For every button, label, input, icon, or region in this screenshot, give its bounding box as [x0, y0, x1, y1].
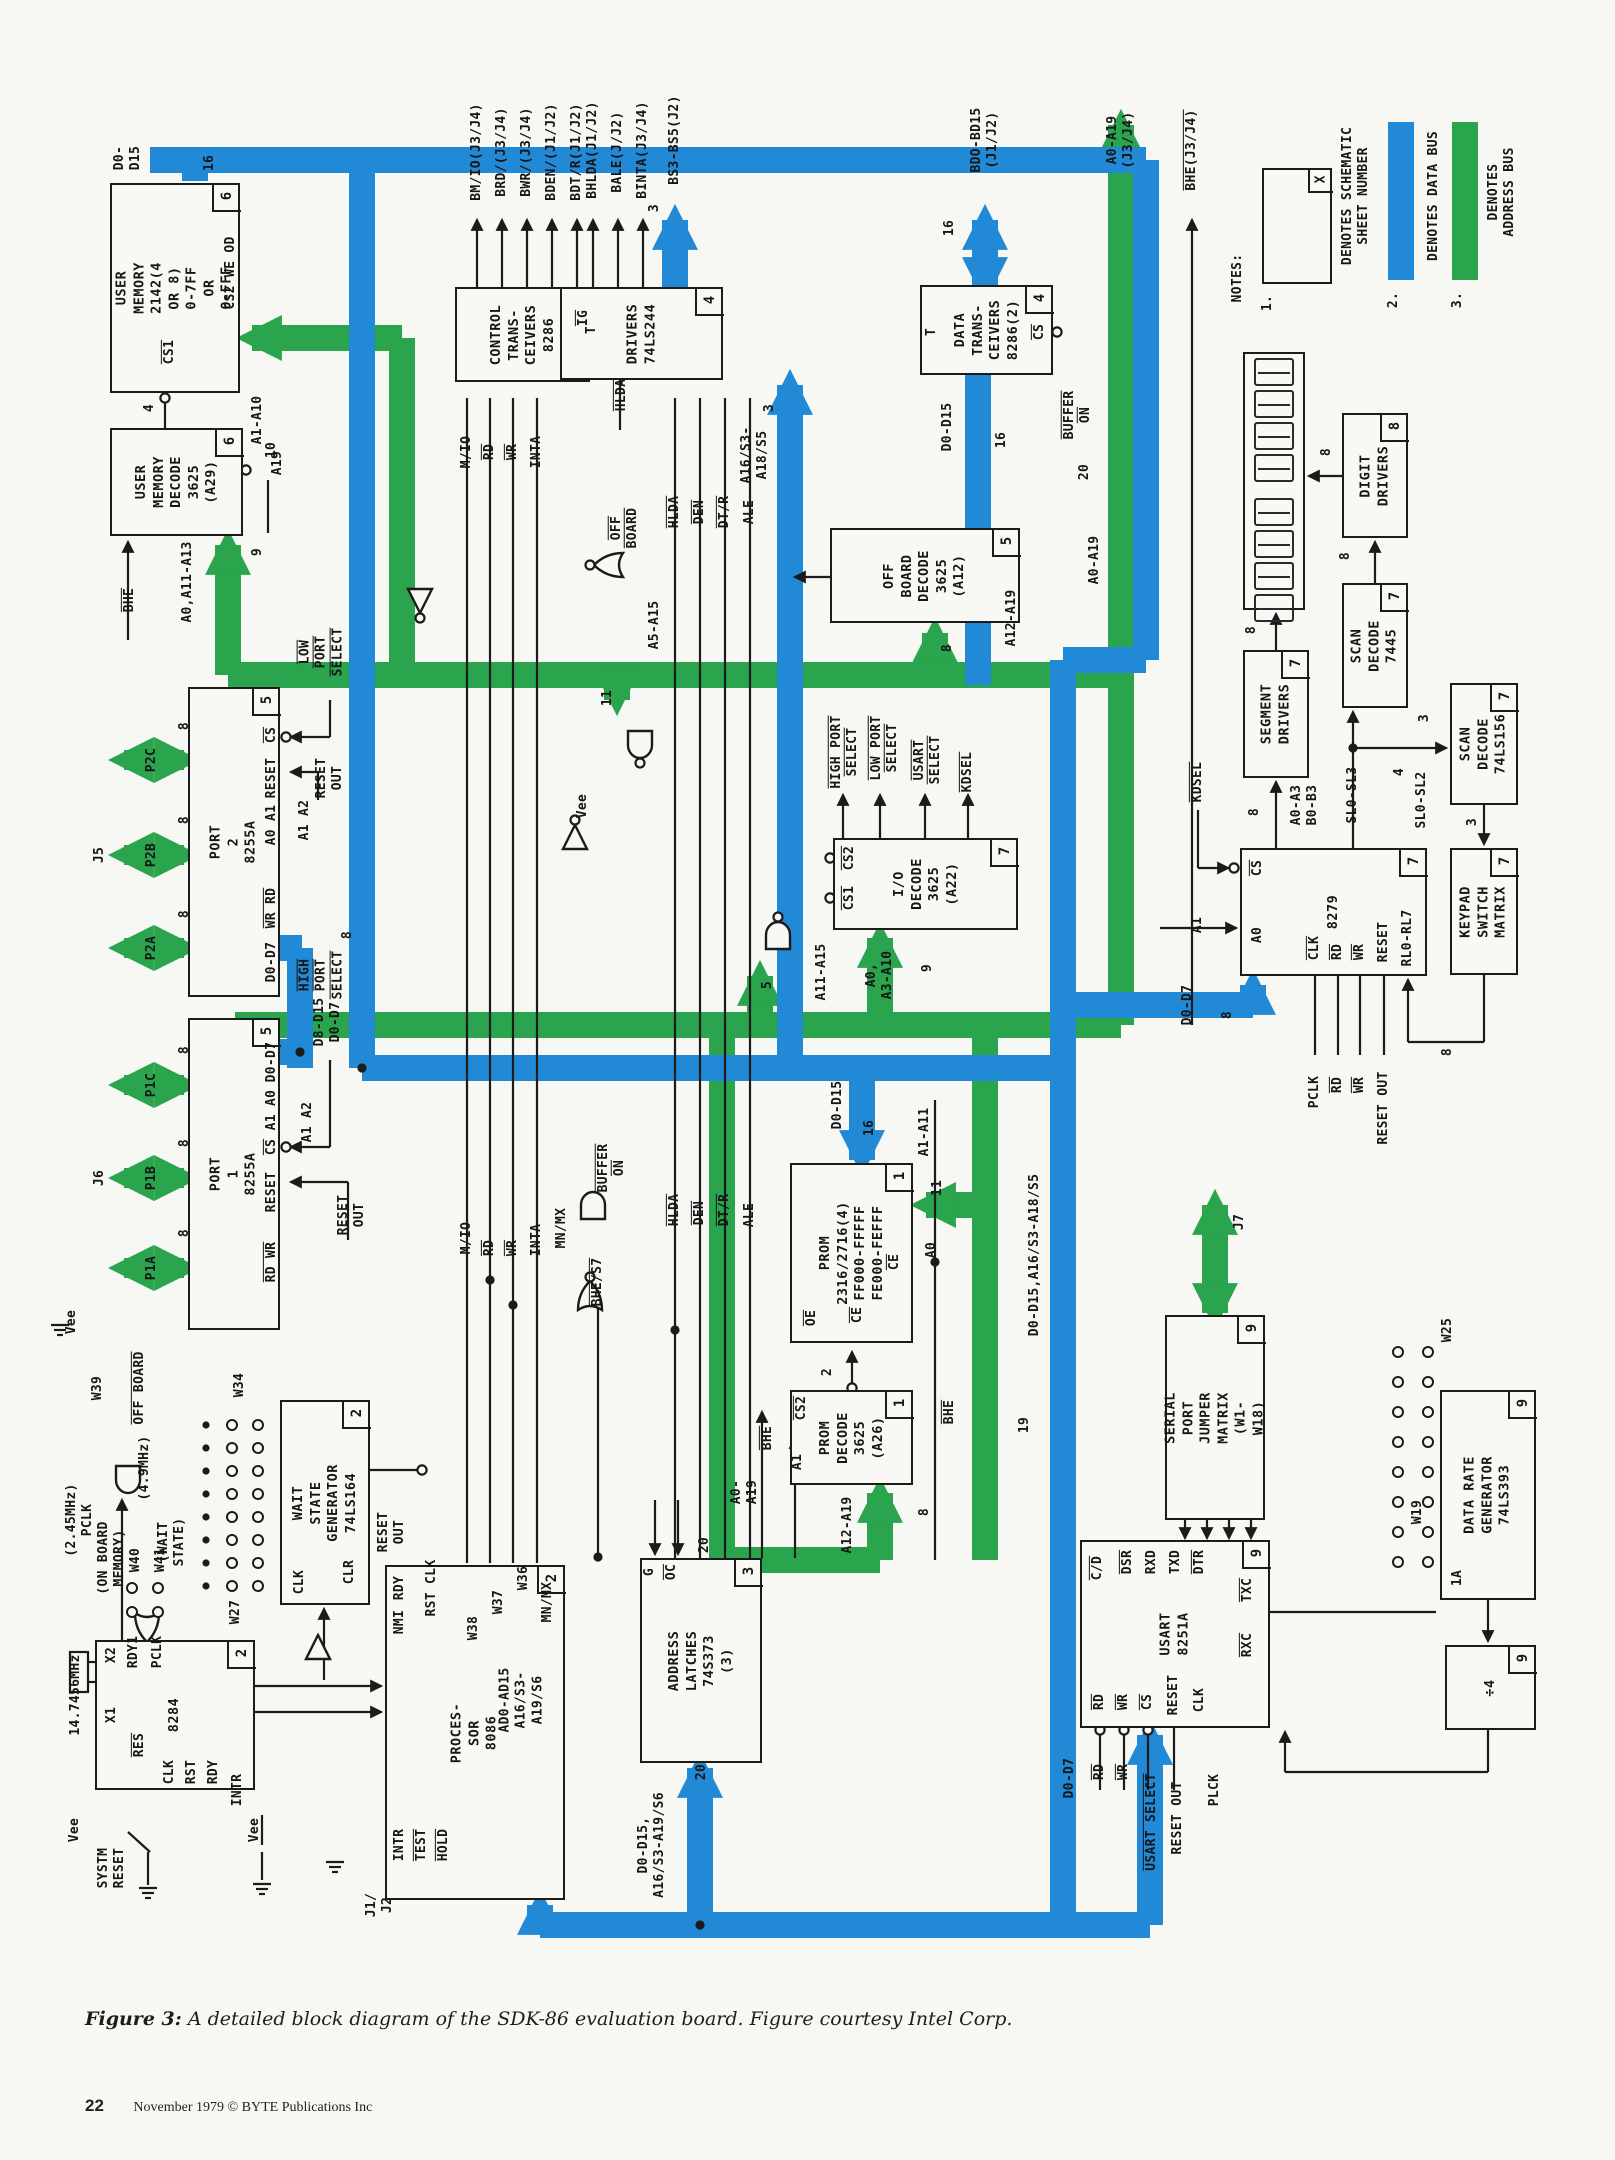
junction-dot: [508, 1300, 517, 1309]
signal-label: PCLK: [1307, 1076, 1323, 1109]
block-label: ÷4: [1482, 1679, 1500, 1696]
jumper-pad: [253, 1558, 263, 1568]
signal-label: 4: [142, 404, 158, 412]
signal-label: 11: [600, 690, 616, 706]
signal-label: (ON BOARD MEMORY): [96, 1521, 129, 1594]
signal-label: D0-D7: [264, 942, 280, 983]
jumper-pad: [227, 1535, 237, 1545]
signal-label: BWR/(J3/J4): [519, 107, 535, 196]
block-label: OFF BOARD DECODE 3625 (A12): [881, 550, 969, 602]
jumper-pad: [127, 1583, 137, 1593]
signal-label: BM/IO(J3/J4): [469, 103, 485, 201]
signal-label: HLDA: [614, 379, 630, 412]
signal-label: PLCK: [1207, 1774, 1223, 1807]
jumper-pad: [127, 1607, 137, 1617]
signal-label: J1/ J2: [364, 1893, 397, 1917]
schematic-sheet-number: 3: [734, 1558, 763, 1587]
schematic-sheet-number: 9: [1237, 1315, 1266, 1344]
signal-label: A1: [1190, 917, 1206, 933]
signal-label: (2.45MHz) PCLK: [64, 1483, 97, 1556]
signal-label: RD WR: [264, 1242, 280, 1283]
block-label: USART 8251A: [1157, 1612, 1192, 1655]
page-number: 22: [85, 2096, 104, 2115]
figure-caption-label: Figure 3:: [85, 2008, 182, 2030]
block-address-latches: ADDRESS LATCHES 74S373 (3)3: [640, 1558, 762, 1763]
signal-label: AD0-AD15 A16/S3- A19/S6: [498, 1667, 547, 1732]
signal-label: 3: [1417, 714, 1433, 722]
signal-label: BINTA(J3/J4): [635, 101, 651, 199]
signal-label: HOLD: [436, 1829, 452, 1862]
signal-label: TEST: [414, 1829, 430, 1862]
signal-label: HIGH PORT SELECT: [829, 715, 862, 788]
jumper-post: [202, 1490, 209, 1497]
signal-label: BUFFER ON: [1062, 391, 1095, 440]
block-off-board-decode: OFF BOARD DECODE 3625 (A12)5: [830, 528, 1020, 623]
signal-label: LOW PORT SELECT: [869, 715, 902, 780]
signal-label: A1 A2: [300, 1102, 316, 1143]
signal-label: A16/S3- A18/S5: [739, 427, 772, 484]
signal-label: A1 A0: [264, 1090, 280, 1131]
block-data-rate-generator: DATA RATE GENERATOR 74LS3939: [1440, 1390, 1536, 1600]
inverting-pin-bubble: [1052, 327, 1061, 336]
signal-label: OFF BOARD: [132, 1351, 148, 1424]
junction-dot: [593, 1552, 602, 1561]
signal-label: CE: [850, 1307, 866, 1323]
block-label: PROCES- SOR 8086: [449, 1702, 502, 1762]
signal-label: OE: [804, 1310, 820, 1326]
inverting-pin-bubble: [160, 393, 169, 402]
block-divide-by-4: ÷49: [1445, 1645, 1536, 1730]
signal-label: RD: [1092, 1764, 1108, 1780]
jumper-pad: [1423, 1527, 1433, 1537]
block-label: CONTROL TRANS- CEIVERS 8286: [487, 304, 557, 364]
signal-label: A0-A19 (J3/J4): [1105, 112, 1138, 169]
signal-label: CS1: [842, 886, 858, 910]
nand-gate: [628, 731, 652, 768]
jumper-post: [202, 1536, 209, 1543]
signal-label: 16: [942, 220, 958, 236]
block-serial-port-jumper-matrix: SERIAL PORT JUMPER MATRIX (W1-W18)9: [1165, 1315, 1265, 1520]
signal-label: DEN: [692, 500, 708, 524]
and-gate: [581, 1192, 605, 1219]
jumper-pad: [1393, 1407, 1403, 1417]
signal-label: 9: [250, 548, 266, 556]
block-label: PORT 2 8255A: [208, 820, 261, 864]
schematic-sheet-number: 5: [992, 528, 1021, 557]
signal-label: P2B: [144, 843, 160, 867]
signal-label: CLK: [1192, 1688, 1208, 1712]
jumper-post: [202, 1513, 209, 1520]
signal-label: OFF BOARD: [609, 508, 642, 549]
seven-segment-digit: [1254, 358, 1294, 386]
signal-label: RXD: [1144, 1550, 1160, 1574]
signal-label: USART SELECT: [1144, 1773, 1160, 1871]
signal-label: D0- D15: [112, 146, 145, 170]
note-1-text: DENOTES SCHEMATIC SHEET NUMBER: [1340, 127, 1373, 265]
signal-label: CE: [887, 1254, 903, 1270]
signal-label: RESET: [1166, 1675, 1182, 1716]
signal-label: A1-A10: [250, 396, 266, 445]
signal-label: W38: [466, 1616, 482, 1640]
signal-label: 3: [1465, 818, 1481, 826]
sheet-number-sample-corner: X: [1308, 168, 1333, 193]
block-label: DATA TRANS- CEIVERS 8286(2): [951, 300, 1021, 360]
jumper-pad: [227, 1466, 237, 1476]
signal-label: D0-D15, A16/S3-A19/S6: [636, 1792, 669, 1898]
seven-segment-digit: [1254, 562, 1294, 590]
signal-label: CLR: [342, 1560, 358, 1584]
jumper-pad: [153, 1583, 163, 1593]
signal-label: BHE: [942, 1400, 958, 1424]
signal-label: 20: [1077, 464, 1093, 480]
signal-label: RESET OUT: [336, 1195, 369, 1236]
signal-label: 16: [202, 155, 218, 171]
signal-label: KDSEL: [1190, 762, 1206, 803]
signal-label: X2: [104, 1647, 120, 1663]
jumper-pad: [1393, 1347, 1403, 1357]
signal-label: 8: [177, 1139, 193, 1147]
signal-label: C/D: [1090, 1556, 1106, 1580]
block-digit-drivers: DIGIT DRIVERS8: [1342, 413, 1408, 538]
signal-label: W25: [1440, 1318, 1456, 1342]
signal-label: W37: [491, 1590, 507, 1614]
signal-label: CS: [264, 1139, 280, 1155]
signal-label: D0-D7: [1062, 1758, 1078, 1799]
block-seven-segment-display: [1243, 352, 1305, 610]
jumper-pad: [227, 1489, 237, 1499]
signal-label: A19: [270, 451, 286, 475]
signal-label: 8: [940, 644, 956, 652]
block-label: PROM 2316/2716(4) FF000-FFFFF FE000-FEFF…: [816, 1201, 886, 1305]
jumper-pad: [1423, 1557, 1433, 1567]
signal-label: RDY1: [126, 1636, 142, 1669]
jumper-pad: [227, 1581, 237, 1591]
signal-label: W40: [128, 1548, 144, 1572]
signal-label: 16: [994, 432, 1010, 448]
wire: [128, 1832, 150, 1852]
signal-label: IG: [576, 310, 592, 326]
signal-label: A0: [1250, 927, 1266, 943]
block-user-memory-decode: USER MEMORY DECODE 3625 (A29)6: [110, 428, 243, 536]
signal-label: CS: [1032, 324, 1048, 340]
signal-label: RESET: [264, 758, 280, 799]
jumper-pad: [1393, 1467, 1403, 1477]
signal-label: WR: [1116, 1694, 1132, 1710]
block-label: PROM DECODE 3625 (A26): [816, 1412, 886, 1464]
signal-label: 20: [697, 1537, 713, 1553]
signal-label: P2A: [144, 936, 160, 960]
seven-segment-digit: [1254, 422, 1294, 450]
block-label: USER MEMORY 2142(4 OR 8) 0-7FF OR 0-FFF: [114, 257, 237, 320]
signal-label: RST CLK: [424, 1560, 440, 1617]
schematic-sheet-number: 7: [1490, 848, 1519, 877]
signal-label: A11-A15: [814, 944, 830, 1001]
block-label: SCAN DECODE 7445: [1349, 620, 1402, 672]
signal-label: BRD/(J3/J4): [494, 107, 510, 196]
signal-label: ALE: [742, 1203, 758, 1227]
signal-label: NMI: [392, 1610, 408, 1634]
signal-label: 8: [177, 816, 193, 824]
signal-label: J6: [92, 1170, 108, 1186]
block-label: WAIT STATE GENERATOR 74LS164: [290, 1464, 360, 1542]
junction-dot: [1348, 743, 1357, 752]
note-1-number: 1.: [1260, 295, 1276, 311]
jumper-pad: [227, 1512, 237, 1522]
page-footer-text: November 1979 © BYTE Publications Inc: [133, 2100, 372, 2115]
signal-label: RD: [1092, 1694, 1108, 1710]
signal-label: HIGH PORT SELECT: [298, 951, 347, 1000]
signal-label: M/IO: [459, 436, 475, 469]
jumper-pad: [1393, 1557, 1403, 1567]
signal-label: 3: [762, 404, 778, 412]
note-2-text: DENOTES DATA BUS: [1426, 131, 1442, 261]
jumper-pad: [253, 1581, 263, 1591]
block-label: 8279: [1325, 895, 1343, 930]
block-label: 8284: [166, 1698, 184, 1733]
jumper-pad: [1393, 1497, 1403, 1507]
signal-label: RL0-RL7: [1400, 910, 1416, 967]
block-label: DATA RATE GENERATOR 74LS393: [1462, 1456, 1515, 1534]
signal-label: Vee: [247, 1818, 263, 1842]
signal-label: P2C: [144, 748, 160, 772]
signal-label: W39: [90, 1376, 106, 1400]
signal-label: BHE(J3/J4): [1184, 109, 1200, 190]
signal-label: A5-A15: [647, 601, 663, 650]
signal-label: 8: [917, 1508, 933, 1516]
signal-label: WR: [505, 1240, 521, 1256]
schematic-sheet-number: 7: [1281, 650, 1310, 679]
jumper-pad: [153, 1607, 163, 1617]
signal-label: P1B: [144, 1166, 160, 1190]
signal-label: CS1: [162, 340, 178, 364]
signal-label: D0-D7: [1180, 985, 1196, 1026]
signal-label: A12-A19: [1004, 590, 1020, 647]
signal-label: T: [584, 326, 600, 334]
jumper-pad: [253, 1512, 263, 1522]
signal-label: D8-D15 D0-D7: [312, 998, 345, 1047]
block-label: DRIVERS 74LS244: [624, 303, 659, 363]
signal-label: BHE: [760, 1426, 776, 1450]
signal-label: A0-A3 B0-B3: [1289, 785, 1322, 826]
signal-label: USART SELECT: [912, 736, 945, 785]
schematic-sheet-number: 6: [212, 183, 241, 212]
jumper-pad: [1423, 1467, 1433, 1477]
signal-label: WR: [505, 444, 521, 460]
signal-label: 8: [1440, 1048, 1456, 1056]
note-3-number: 3.: [1450, 292, 1466, 308]
signal-label: CS2 WE OD: [223, 236, 239, 309]
inverting-pin-bubble: [417, 1465, 426, 1474]
signal-label: CS2: [794, 1396, 810, 1420]
schematic-sheet-number: 1: [885, 1163, 914, 1192]
signal-label: RESET OUT: [314, 758, 347, 799]
signal-label: RDY: [206, 1760, 222, 1784]
signal-label: 14.7456MHz: [68, 1654, 84, 1735]
junction-dot: [930, 1257, 939, 1266]
signal-label: 4: [1392, 768, 1408, 776]
note-2-number: 2.: [1386, 292, 1402, 308]
signal-label: D0-D15: [830, 1081, 846, 1130]
jumper-pad: [227, 1420, 237, 1430]
signal-label: BDO-BD15 (J1/J2): [969, 107, 1002, 172]
signal-label: WR: [1116, 1764, 1132, 1780]
nor-gate: [586, 553, 624, 577]
signal-label: D0-D15,A16/S3-A18/S5: [1027, 1174, 1043, 1337]
signal-label: BUFFER ON: [596, 1144, 629, 1193]
block-label: SCAN DECODE 74LS156: [1458, 714, 1511, 774]
signal-label: RDY: [392, 1576, 408, 1600]
block-scan-decode-74ls156: SCAN DECODE 74LS1567: [1450, 683, 1518, 805]
signal-label: TXD: [1168, 1550, 1184, 1574]
signal-label: G: [642, 1568, 658, 1576]
signal-label: PCLK: [150, 1636, 166, 1669]
signal-label: BDT/R(J1/J2): [569, 103, 585, 201]
signal-label: RESET: [264, 1172, 280, 1213]
junction-dot: [670, 1325, 679, 1334]
signal-label: SL0-SL3: [1345, 767, 1361, 824]
signal-label: J5: [92, 847, 108, 863]
signal-label: RESET: [1376, 922, 1392, 963]
signal-label: LOW PORT SELECT: [298, 628, 347, 677]
signal-label: MN/MX: [540, 1582, 556, 1623]
signal-label: DTR: [1192, 1550, 1208, 1574]
signal-label: 2: [820, 1368, 836, 1376]
address-bus-swatch: [1452, 122, 1478, 280]
signal-label: CLK: [292, 1570, 308, 1594]
signal-label: 8: [1247, 808, 1263, 816]
jumper-pad: [1423, 1437, 1433, 1447]
signal-label: D0-D7: [264, 1042, 280, 1083]
signal-label: 1A: [1450, 1570, 1466, 1586]
signal-label: 8: [177, 910, 193, 918]
seven-segment-digit: [1254, 594, 1294, 622]
jumper-pad: [227, 1443, 237, 1453]
signal-label: A0-A19: [1087, 536, 1103, 585]
buf-gate: [306, 1635, 330, 1659]
block-keypad-switch-matrix: KEYPAD SWITCH MATRIX7: [1450, 848, 1518, 975]
junction-dot: [695, 1920, 704, 1929]
signal-label: 8: [1244, 626, 1260, 634]
sdk86-block-diagram-page: NOTES: 1. X DENOTES SCHEMATIC SHEET NUMB…: [0, 0, 1615, 2160]
schematic-sheet-number: 8: [1380, 413, 1409, 442]
signal-label: A1-A11: [917, 1108, 933, 1157]
schematic-sheet-number: 2: [342, 1400, 371, 1429]
jumper-post: [202, 1421, 209, 1428]
signal-label: DT/R: [717, 1194, 733, 1227]
inv-gate: [563, 816, 587, 850]
junction-dot: [485, 1275, 494, 1284]
jumper-pad: [1393, 1377, 1403, 1387]
signal-label: RD: [482, 444, 498, 460]
signal-label: BALE(J/J2): [610, 111, 626, 192]
jumper-pad: [227, 1558, 237, 1568]
signal-label: RXC: [1240, 1633, 1256, 1657]
signal-label: DEN: [692, 1201, 708, 1225]
signal-label: RST: [184, 1760, 200, 1784]
signal-label: 8: [177, 1229, 193, 1237]
schematic-sheet-number: 9: [1508, 1645, 1537, 1674]
signal-label: RESET OUT: [1170, 1781, 1186, 1854]
signal-label: BHE/S7: [590, 1258, 606, 1307]
signal-label: BDEN/(J1/J2): [544, 103, 560, 201]
schematic-sheet-number: 4: [1025, 285, 1054, 314]
signal-label: Vee: [64, 1310, 80, 1334]
inverting-pin-bubble: [281, 1142, 290, 1151]
jumper-pad: [1423, 1377, 1433, 1387]
data-bus-swatch: [1388, 122, 1414, 280]
signal-label: RD: [1330, 944, 1346, 960]
jumper-pad: [1423, 1347, 1433, 1357]
signal-label: W27: [228, 1600, 244, 1624]
signal-label: 11: [930, 1180, 946, 1196]
signal-label: HLDA: [667, 1194, 683, 1227]
schematic-sheet-number: 7: [1380, 583, 1409, 612]
signal-label: CS2: [842, 846, 858, 870]
signal-label: A0,A11-A13: [180, 541, 196, 622]
signal-label: WR: [1352, 944, 1368, 960]
junction-dot: [295, 1047, 304, 1056]
signal-label: A0: [924, 1242, 940, 1258]
signal-label: T: [924, 328, 940, 336]
block-label: ADDRESS LATCHES 74S373 (3): [666, 1630, 736, 1690]
signal-label: 8: [1338, 552, 1354, 560]
signal-label: P1A: [144, 1256, 160, 1280]
jumper-post: [202, 1559, 209, 1566]
signal-label: (4.9MHz): [137, 1435, 153, 1500]
signal-label: 8: [177, 722, 193, 730]
jumper-pad: [1393, 1527, 1403, 1537]
signal-label: 3: [647, 204, 663, 212]
block-scan-decode-7445: SCAN DECODE 74457: [1342, 583, 1408, 708]
signal-label: ALE: [742, 500, 758, 524]
signal-label: BHE: [122, 588, 138, 612]
signal-label: BHLDA(J1/J2): [585, 101, 601, 199]
schematic-sheet-number: 7: [990, 838, 1019, 867]
figure-caption: Figure 3: A detailed block diagram of th…: [85, 2008, 1485, 2030]
schematic-sheet-number: 9: [1508, 1390, 1537, 1419]
signal-label: INTA: [529, 436, 545, 469]
schematic-sheet-number: 7: [1490, 683, 1519, 712]
signal-label: RD: [482, 1240, 498, 1256]
signal-label: CS: [1140, 1694, 1156, 1710]
signal-label: W34: [232, 1373, 248, 1397]
schematic-sheet-number: 5: [252, 687, 281, 716]
signal-label: RD: [1330, 1077, 1346, 1093]
signal-label: 8: [1319, 448, 1335, 456]
jumper-pad: [253, 1489, 263, 1499]
signal-label: CLK: [1307, 936, 1323, 960]
signal-label: 8: [1220, 1011, 1236, 1019]
signal-label: TXC: [1240, 1578, 1256, 1602]
block-label: KEYPAD SWITCH MATRIX: [1458, 886, 1511, 938]
jumper-pad: [253, 1443, 263, 1453]
signal-label: INTR: [392, 1829, 408, 1862]
signal-label: 16: [862, 1120, 878, 1136]
figure-caption-text: A detailed block diagram of the SDK-86 e…: [188, 2008, 1013, 2030]
signal-label: W19: [1410, 1500, 1426, 1524]
note-3-text: DENOTES ADDRESS BUS: [1486, 147, 1519, 236]
block-label: SERIAL PORT JUMPER MATRIX (W1-W18): [1162, 1392, 1267, 1444]
signal-label: M/IO: [459, 1222, 475, 1255]
schematic-sheet-number: 6: [215, 428, 244, 457]
signal-label: RESET OUT: [376, 1512, 409, 1553]
block-label: I/O DECODE 3625 (A22): [890, 858, 960, 910]
signal-label: DSR: [1120, 1550, 1136, 1574]
signal-label: 8: [177, 1046, 193, 1054]
signal-label: CS: [1250, 860, 1266, 876]
signal-label: CS: [264, 727, 280, 743]
jumper-pad: [1423, 1407, 1433, 1417]
